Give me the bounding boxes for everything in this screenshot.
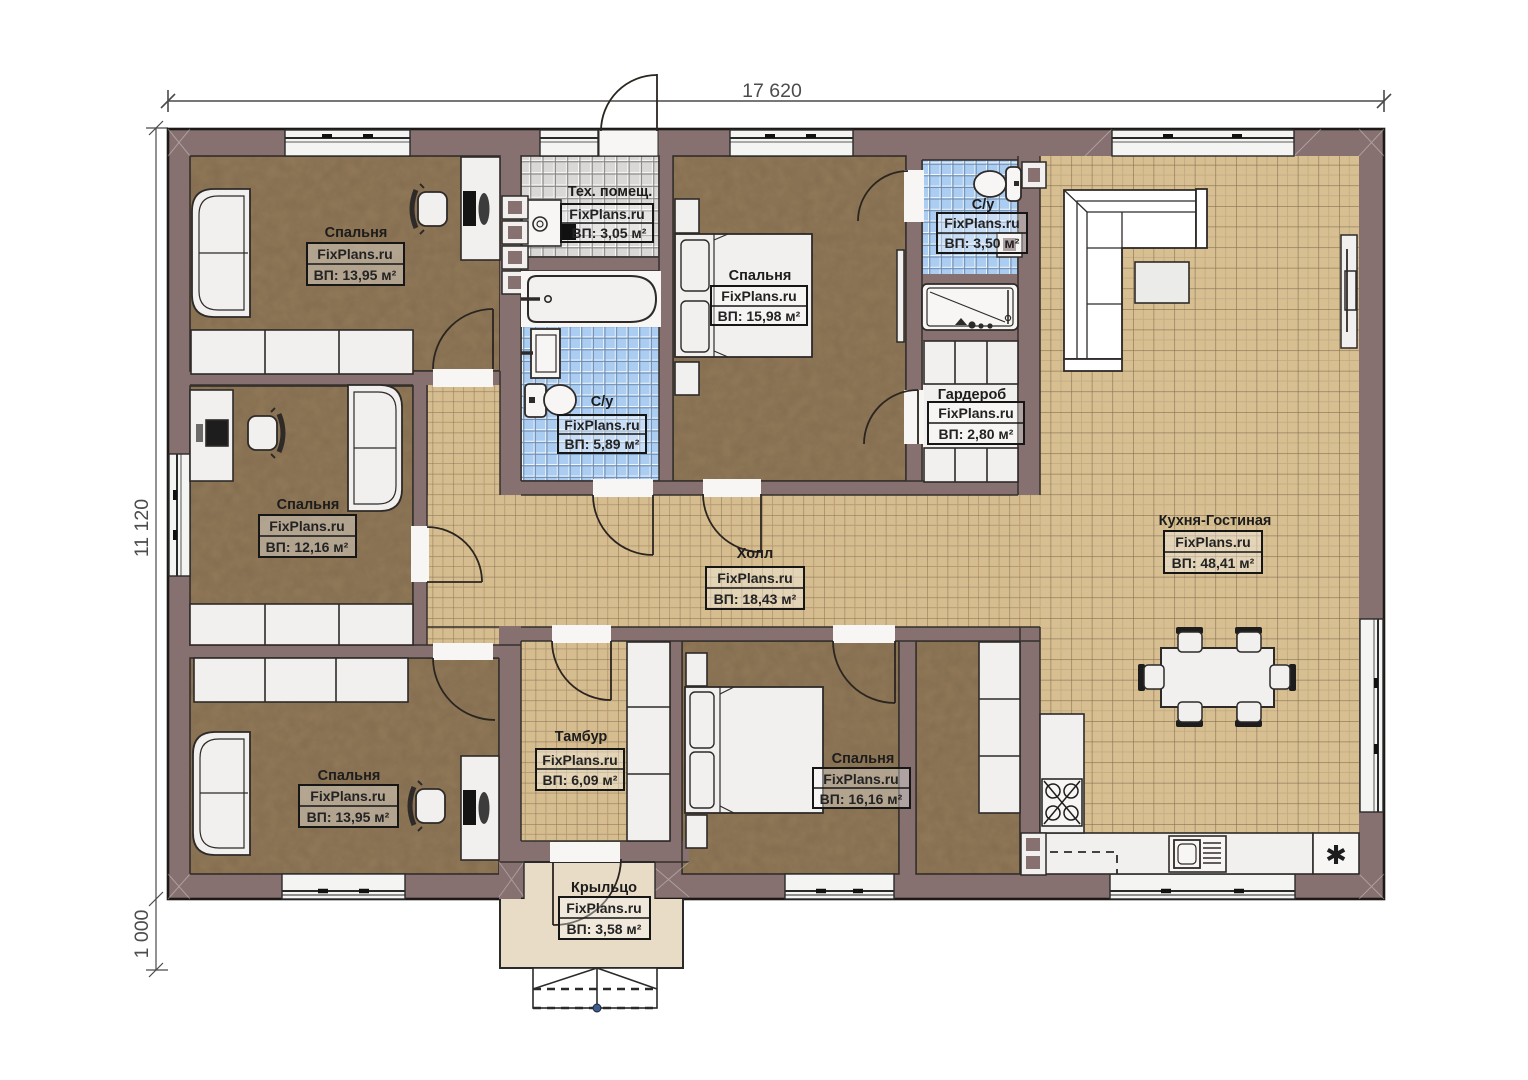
- svg-text:17 620: 17 620: [742, 80, 802, 102]
- svg-text:Спальня: Спальня: [729, 268, 792, 284]
- svg-text:Холл: Холл: [737, 546, 773, 562]
- svg-text:ВП: 3,05 м²: ВП: 3,05 м²: [572, 225, 647, 241]
- svg-text:FixPlans.ru: FixPlans.ru: [938, 405, 1013, 421]
- svg-text:С/у: С/у: [972, 197, 995, 213]
- svg-text:FixPlans.ru: FixPlans.ru: [564, 417, 639, 433]
- svg-text:С/у: С/у: [591, 394, 614, 410]
- svg-text:ВП: 6,09 м²: ВП: 6,09 м²: [543, 772, 618, 788]
- svg-text:Гардероб: Гардероб: [938, 387, 1007, 403]
- svg-text:ВП: 18,43 м²: ВП: 18,43 м²: [714, 591, 797, 607]
- svg-text:Спальня: Спальня: [325, 225, 388, 241]
- svg-text:FixPlans.ru: FixPlans.ru: [317, 246, 392, 262]
- svg-text:ВП: 16,16 м²: ВП: 16,16 м²: [820, 791, 903, 807]
- svg-text:FixPlans.ru: FixPlans.ru: [269, 518, 344, 534]
- svg-text:ВП: 13,95 м²: ВП: 13,95 м²: [307, 809, 390, 825]
- svg-text:11 120: 11 120: [131, 499, 153, 557]
- svg-text:ВП: 3,58 м²: ВП: 3,58 м²: [567, 921, 642, 937]
- svg-text:FixPlans.ru: FixPlans.ru: [717, 570, 792, 586]
- svg-text:ВП: 15,98 м²: ВП: 15,98 м²: [718, 308, 801, 324]
- svg-text:FixPlans.ru: FixPlans.ru: [542, 752, 617, 768]
- svg-text:FixPlans.ru: FixPlans.ru: [944, 215, 1019, 231]
- svg-text:1 000: 1 000: [131, 909, 153, 958]
- svg-text:Спальня: Спальня: [277, 497, 340, 513]
- svg-text:Тамбур: Тамбур: [555, 729, 608, 745]
- svg-text:ВП: 3,50 м²: ВП: 3,50 м²: [945, 235, 1020, 251]
- svg-text:FixPlans.ru: FixPlans.ru: [569, 206, 644, 222]
- svg-text:FixPlans.ru: FixPlans.ru: [566, 900, 641, 916]
- svg-text:ВП: 2,80 м²: ВП: 2,80 м²: [939, 426, 1014, 442]
- svg-text:✱: ✱: [1325, 840, 1347, 870]
- svg-text:Тех. помещ.: Тех. помещ.: [568, 184, 653, 200]
- svg-text:FixPlans.ru: FixPlans.ru: [823, 771, 898, 787]
- svg-text:ВП: 12,16 м²: ВП: 12,16 м²: [266, 539, 349, 555]
- svg-text:Спальня: Спальня: [318, 768, 381, 784]
- svg-text:FixPlans.ru: FixPlans.ru: [1175, 534, 1250, 550]
- svg-text:ВП: 48,41 м²: ВП: 48,41 м²: [1172, 555, 1255, 571]
- svg-text:Спальня: Спальня: [832, 751, 895, 767]
- svg-text:Крыльцо: Крыльцо: [571, 880, 637, 896]
- svg-text:FixPlans.ru: FixPlans.ru: [721, 288, 796, 304]
- svg-text:FixPlans.ru: FixPlans.ru: [310, 788, 385, 804]
- svg-text:ВП: 13,95 м²: ВП: 13,95 м²: [314, 267, 397, 283]
- svg-text:ВП: 5,89 м²: ВП: 5,89 м²: [565, 436, 640, 452]
- svg-text:Кухня-Гостиная: Кухня-Гостиная: [1159, 513, 1272, 529]
